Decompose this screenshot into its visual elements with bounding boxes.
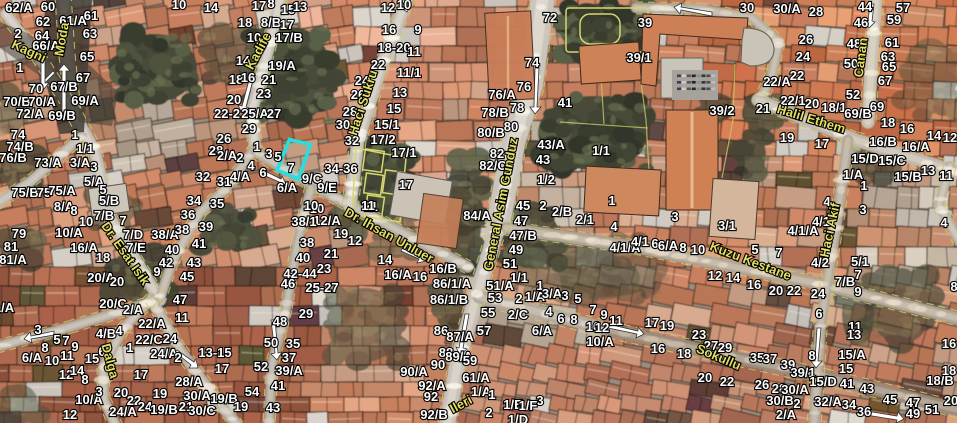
svg-text:61: 61 (84, 8, 98, 23)
svg-text:1: 1 (488, 387, 495, 402)
svg-text:21: 21 (756, 101, 770, 116)
svg-text:11: 11 (361, 198, 375, 213)
svg-text:4/A: 4/A (230, 169, 251, 184)
svg-text:39/1: 39/1 (626, 50, 651, 65)
svg-text:48: 48 (273, 314, 287, 329)
svg-text:5/B: 5/B (99, 193, 119, 208)
svg-text:16: 16 (900, 121, 914, 136)
svg-text:72: 72 (543, 10, 557, 25)
svg-text:69: 69 (870, 99, 884, 114)
svg-text:11: 11 (609, 313, 623, 328)
svg-text:39: 39 (638, 15, 652, 30)
svg-text:62: 62 (36, 14, 50, 29)
svg-text:14: 14 (378, 252, 393, 267)
svg-text:45: 45 (516, 198, 530, 213)
svg-text:28/A: 28/A (175, 374, 203, 389)
svg-text:1/A: 1/A (0, 300, 15, 315)
svg-text:7: 7 (287, 160, 294, 175)
svg-text:34: 34 (187, 193, 202, 208)
svg-text:4/1/A: 4/1/A (787, 223, 819, 238)
svg-text:8: 8 (950, 279, 957, 294)
svg-text:47: 47 (173, 292, 187, 307)
svg-text:12: 12 (708, 268, 722, 283)
svg-text:11: 11 (175, 310, 189, 325)
svg-text:1/2: 1/2 (537, 172, 555, 187)
svg-text:3: 3 (34, 322, 41, 337)
svg-text:4: 4 (115, 323, 123, 338)
svg-text:90/A: 90/A (400, 364, 428, 379)
svg-text:2/C: 2/C (508, 307, 529, 322)
svg-text:15/D: 15/D (809, 374, 836, 389)
svg-text:30/B: 30/B (766, 393, 793, 408)
svg-text:18/1: 18/1 (821, 100, 846, 115)
svg-text:1: 1 (126, 340, 133, 355)
svg-text:44: 44 (858, 0, 873, 14)
svg-text:6/A: 6/A (277, 180, 298, 195)
svg-text:15: 15 (85, 351, 99, 366)
svg-text:86/1/A: 86/1/A (433, 276, 472, 291)
svg-text:13: 13 (847, 327, 861, 342)
svg-text:2: 2 (515, 291, 522, 306)
svg-text:43: 43 (266, 400, 280, 415)
svg-text:17: 17 (399, 177, 413, 192)
svg-text:10: 10 (397, 0, 411, 12)
svg-text:61: 61 (885, 35, 899, 50)
svg-text:11: 11 (407, 44, 421, 59)
svg-text:51: 51 (925, 402, 939, 417)
svg-text:55: 55 (481, 305, 495, 320)
svg-text:38: 38 (175, 222, 189, 237)
svg-text:10: 10 (304, 198, 318, 213)
svg-text:15/B: 15/B (894, 169, 921, 184)
svg-text:46: 46 (281, 276, 295, 291)
svg-text:17/B: 17/B (275, 30, 302, 45)
svg-text:4/B: 4/B (96, 326, 116, 341)
svg-text:15: 15 (839, 361, 853, 376)
svg-text:7: 7 (775, 245, 782, 260)
svg-text:43: 43 (536, 152, 550, 167)
svg-text:16: 16 (382, 22, 396, 37)
svg-text:26: 26 (755, 377, 769, 392)
svg-text:18: 18 (942, 363, 956, 378)
svg-text:69/B: 69/B (48, 108, 75, 123)
svg-text:5: 5 (574, 291, 581, 306)
svg-text:19: 19 (660, 318, 674, 333)
svg-text:36: 36 (181, 207, 195, 222)
svg-text:19: 19 (334, 226, 348, 241)
svg-text:47/B: 47/B (509, 228, 536, 243)
svg-text:74: 74 (525, 55, 540, 70)
svg-text:65: 65 (882, 59, 896, 74)
svg-text:11: 11 (939, 168, 953, 183)
svg-text:63: 63 (83, 26, 97, 41)
svg-text:16/B: 16/B (429, 261, 456, 276)
svg-text:1: 1 (71, 127, 78, 142)
svg-text:6/A: 6/A (22, 350, 43, 365)
svg-text:13: 13 (393, 85, 407, 100)
svg-text:17: 17 (252, 0, 266, 13)
svg-text:8: 8 (570, 312, 577, 327)
svg-text:3/A: 3/A (70, 155, 91, 170)
svg-text:17: 17 (815, 136, 829, 151)
svg-text:43/A: 43/A (537, 137, 565, 152)
svg-text:67: 67 (878, 73, 892, 88)
svg-text:12: 12 (381, 0, 395, 15)
svg-text:1: 1 (253, 139, 260, 154)
svg-text:22/C: 22/C (135, 332, 163, 347)
svg-text:2/B: 2/B (552, 204, 572, 219)
svg-text:3: 3 (671, 209, 678, 224)
svg-text:69/B: 69/B (844, 106, 871, 121)
svg-text:6: 6 (815, 306, 822, 321)
svg-text:2/A: 2/A (217, 148, 238, 163)
svg-text:16: 16 (747, 277, 761, 292)
svg-text:65: 65 (80, 49, 94, 64)
svg-text:75/B: 75/B (11, 185, 38, 200)
svg-text:4: 4 (610, 219, 618, 234)
svg-text:67/B: 67/B (50, 79, 77, 94)
svg-text:17: 17 (215, 361, 229, 376)
svg-text:2: 2 (793, 396, 800, 411)
svg-text:92: 92 (424, 389, 438, 404)
svg-text:7/B: 7/B (835, 274, 855, 289)
svg-text:6: 6 (557, 311, 564, 326)
svg-text:24/A: 24/A (109, 404, 137, 419)
svg-text:41: 41 (192, 236, 206, 251)
svg-text:35: 35 (286, 336, 300, 351)
svg-text:13-15: 13-15 (198, 345, 231, 360)
svg-text:8: 8 (41, 340, 48, 355)
svg-text:16: 16 (942, 336, 956, 351)
svg-text:78: 78 (510, 100, 524, 115)
svg-text:13: 13 (921, 163, 935, 178)
svg-text:62/A: 62/A (5, 0, 33, 15)
svg-text:2: 2 (174, 350, 181, 365)
svg-text:19: 19 (234, 399, 248, 414)
svg-text:1/D: 1/D (508, 412, 528, 423)
svg-text:15/C: 15/C (878, 153, 906, 168)
svg-text:12: 12 (348, 233, 362, 248)
svg-text:39/A: 39/A (275, 363, 303, 378)
svg-text:20: 20 (110, 274, 124, 289)
svg-text:42: 42 (159, 255, 173, 270)
svg-text:2/1: 2/1 (576, 212, 594, 227)
svg-text:20: 20 (769, 283, 783, 298)
svg-text:2: 2 (236, 150, 243, 165)
svg-text:35: 35 (210, 196, 224, 211)
svg-text:47: 47 (514, 213, 528, 228)
svg-text:24: 24 (811, 286, 826, 301)
svg-text:51: 51 (503, 256, 517, 271)
svg-text:23: 23 (317, 261, 331, 276)
svg-text:54: 54 (245, 384, 260, 399)
svg-text:17: 17 (645, 315, 659, 330)
svg-text:26: 26 (799, 32, 813, 47)
svg-text:16: 16 (413, 269, 427, 284)
svg-text:14: 14 (726, 270, 741, 285)
svg-text:43: 43 (187, 255, 201, 270)
svg-text:22: 22 (371, 57, 385, 72)
svg-text:3: 3 (561, 288, 568, 303)
svg-text:29: 29 (299, 306, 313, 321)
svg-text:6: 6 (259, 165, 266, 180)
svg-text:4: 4 (940, 215, 948, 230)
svg-text:32/A: 32/A (814, 394, 842, 409)
svg-text:1/1: 1/1 (76, 141, 94, 156)
svg-text:9: 9 (854, 284, 861, 299)
svg-text:15/1: 15/1 (374, 117, 399, 132)
svg-text:57: 57 (477, 323, 491, 338)
svg-text:14: 14 (927, 128, 942, 143)
svg-text:4/1: 4/1 (631, 234, 649, 249)
svg-text:51/A: 51/A (486, 278, 514, 293)
svg-text:17: 17 (134, 367, 148, 382)
svg-text:3: 3 (536, 393, 543, 408)
svg-text:45: 45 (883, 392, 897, 407)
svg-text:19: 19 (153, 386, 167, 401)
svg-text:3: 3 (95, 384, 102, 399)
svg-text:37: 37 (763, 351, 777, 366)
svg-text:10: 10 (172, 0, 186, 12)
svg-text:8/B: 8/B (261, 15, 281, 30)
svg-text:22-2: 22-2 (214, 106, 240, 121)
svg-text:2: 2 (539, 198, 546, 213)
svg-text:22/A: 22/A (763, 74, 791, 89)
svg-text:8: 8 (679, 240, 686, 255)
svg-text:17/1: 17/1 (391, 145, 416, 160)
svg-text:8: 8 (267, 0, 274, 11)
svg-text:11/1: 11/1 (397, 65, 422, 80)
svg-text:16/A: 16/A (384, 267, 412, 282)
svg-text:24: 24 (796, 49, 811, 64)
svg-text:52: 52 (846, 87, 860, 102)
svg-text:1: 1 (860, 178, 867, 193)
svg-text:6/A: 6/A (658, 238, 679, 253)
svg-text:80/B: 80/B (477, 125, 504, 140)
svg-text:7: 7 (589, 302, 596, 317)
svg-text:29: 29 (242, 121, 256, 136)
svg-text:23: 23 (257, 86, 271, 101)
svg-text:19/B: 19/B (150, 402, 177, 417)
svg-text:76: 76 (517, 79, 531, 94)
svg-text:10: 10 (45, 353, 59, 368)
svg-text:13: 13 (293, 0, 307, 14)
svg-text:36: 36 (857, 404, 871, 419)
svg-text:67: 67 (76, 70, 90, 85)
svg-text:12: 12 (943, 130, 957, 145)
svg-text:16/B: 16/B (869, 134, 896, 149)
svg-text:34: 34 (842, 397, 857, 412)
svg-text:25-27: 25-27 (305, 280, 338, 295)
svg-text:22/A: 22/A (138, 316, 166, 331)
svg-text:19: 19 (780, 130, 794, 145)
svg-text:1: 1 (608, 193, 615, 208)
svg-text:21: 21 (324, 246, 338, 261)
svg-text:18: 18 (677, 346, 691, 361)
svg-text:3/A: 3/A (542, 286, 563, 301)
svg-text:5: 5 (274, 149, 281, 164)
svg-text:41: 41 (558, 95, 572, 110)
svg-text:76/B: 76/B (0, 150, 27, 165)
svg-text:3: 3 (265, 146, 272, 161)
svg-text:61/A: 61/A (462, 370, 490, 385)
svg-text:1/F: 1/F (519, 398, 538, 413)
svg-text:7: 7 (854, 267, 861, 282)
svg-text:7: 7 (119, 213, 126, 228)
svg-text:81/A: 81/A (0, 252, 27, 267)
svg-text:78/B: 78/B (481, 105, 508, 120)
svg-text:9/E: 9/E (317, 180, 337, 195)
svg-text:49: 49 (509, 242, 523, 257)
svg-text:18: 18 (238, 15, 252, 30)
svg-text:7: 7 (62, 333, 69, 348)
svg-text:40: 40 (296, 250, 310, 265)
svg-text:72/A: 72/A (16, 106, 44, 121)
svg-text:9: 9 (414, 22, 421, 37)
svg-text:3: 3 (90, 159, 97, 174)
svg-text:41: 41 (271, 378, 285, 393)
svg-text:3: 3 (859, 202, 866, 217)
svg-text:15/A: 15/A (838, 347, 866, 362)
svg-text:39: 39 (199, 219, 213, 234)
svg-text:8: 8 (70, 203, 77, 218)
svg-text:87/A: 87/A (446, 329, 474, 344)
svg-text:16: 16 (241, 70, 255, 85)
svg-text:21: 21 (262, 72, 276, 87)
svg-text:92/B: 92/B (420, 407, 447, 422)
svg-text:10/A: 10/A (586, 334, 614, 349)
svg-text:5: 5 (53, 332, 60, 347)
svg-text:50: 50 (264, 335, 278, 350)
svg-text:69/A: 69/A (71, 93, 99, 108)
svg-text:12: 12 (595, 320, 609, 335)
svg-text:10: 10 (691, 242, 705, 257)
svg-text:86/1/B: 86/1/B (430, 292, 468, 307)
svg-text:32: 32 (196, 169, 210, 184)
svg-text:18: 18 (96, 250, 110, 265)
svg-text:6/A: 6/A (532, 323, 553, 338)
svg-text:30/C: 30/C (188, 403, 216, 418)
svg-text:1: 1 (16, 60, 23, 75)
svg-text:25/A: 25/A (241, 106, 269, 121)
svg-text:2: 2 (485, 405, 492, 420)
svg-text:9: 9 (71, 339, 78, 354)
svg-text:39/2: 39/2 (709, 103, 734, 118)
svg-text:60: 60 (41, 0, 55, 14)
svg-text:43: 43 (860, 381, 874, 396)
svg-text:10: 10 (79, 214, 93, 229)
svg-text:22: 22 (720, 374, 734, 389)
svg-text:2/A: 2/A (123, 302, 144, 317)
svg-text:15/D: 15/D (851, 151, 878, 166)
svg-text:8: 8 (81, 372, 88, 387)
svg-text:30/A: 30/A (773, 1, 801, 16)
svg-text:22: 22 (790, 68, 804, 83)
svg-text:38: 38 (300, 235, 314, 250)
svg-text:16/A: 16/A (70, 240, 98, 255)
svg-text:38/1: 38/1 (291, 214, 316, 229)
svg-text:14: 14 (204, 0, 219, 15)
svg-text:84/A: 84/A (463, 208, 491, 223)
svg-text:30: 30 (740, 0, 754, 15)
svg-text:20: 20 (227, 92, 241, 107)
svg-text:20: 20 (698, 370, 712, 385)
svg-text:90: 90 (431, 357, 445, 372)
svg-text:46: 46 (854, 15, 868, 30)
svg-text:18: 18 (881, 115, 895, 130)
svg-text:8: 8 (808, 348, 815, 363)
svg-text:73/A: 73/A (34, 155, 62, 170)
svg-text:80: 80 (504, 119, 518, 134)
svg-text:27: 27 (267, 106, 281, 121)
svg-text:28: 28 (809, 4, 823, 19)
svg-text:41: 41 (840, 376, 854, 391)
svg-text:34-36: 34-36 (324, 161, 357, 176)
svg-text:3/1: 3/1 (718, 218, 736, 233)
svg-text:18-20: 18-20 (377, 40, 410, 55)
svg-text:59: 59 (463, 353, 477, 368)
svg-text:1/1: 1/1 (592, 143, 610, 158)
svg-text:22: 22 (787, 283, 801, 298)
svg-text:52: 52 (254, 359, 268, 374)
svg-text:45: 45 (180, 269, 194, 284)
svg-text:24: 24 (163, 331, 178, 346)
svg-text:20: 20 (944, 393, 957, 408)
svg-text:19/A: 19/A (268, 58, 296, 73)
svg-text:4: 4 (545, 304, 553, 319)
svg-text:9: 9 (153, 264, 160, 279)
svg-text:49: 49 (906, 406, 920, 421)
svg-text:59: 59 (887, 12, 901, 27)
svg-text:15: 15 (387, 101, 401, 116)
svg-text:16: 16 (651, 341, 665, 356)
svg-text:12: 12 (63, 407, 77, 422)
svg-text:75/A: 75/A (48, 183, 76, 198)
